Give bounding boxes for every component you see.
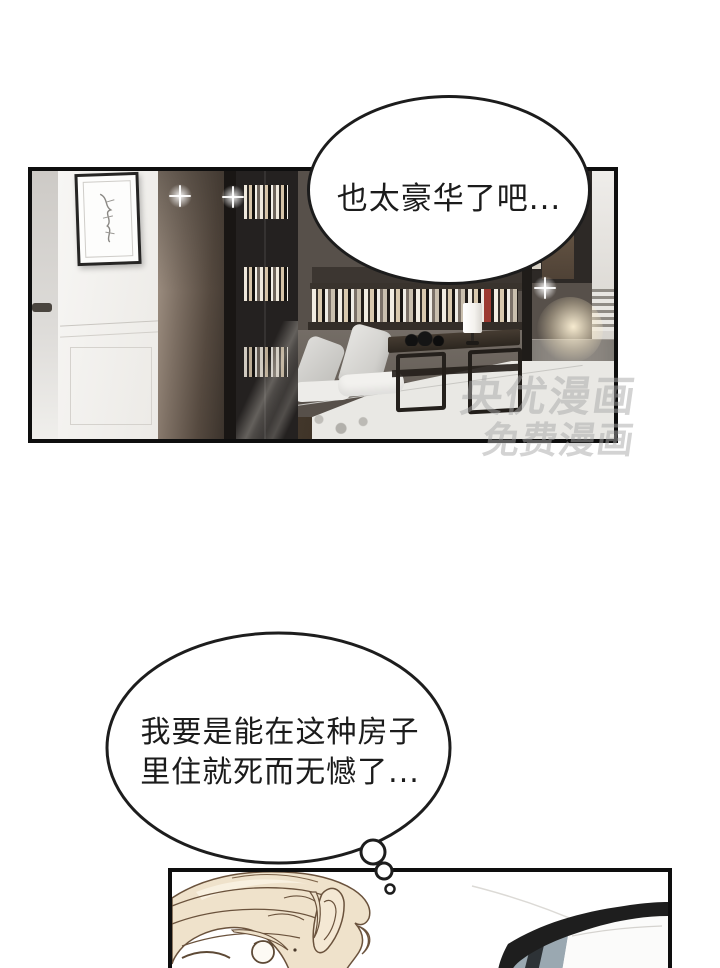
- table-lamp-stem: [471, 333, 474, 341]
- character-eyebrow: [182, 952, 230, 958]
- table-lamp-shade: [463, 303, 482, 333]
- speech-bubble-text: 也太豪华了吧...: [337, 173, 562, 218]
- bookcase-shelf-books: [244, 185, 288, 219]
- thought-line-1: 我要是能在这种房子: [120, 713, 440, 753]
- door-handle: [32, 303, 52, 312]
- door-panel: [70, 347, 152, 425]
- thought-line-2: 里住就死而无憾了...: [120, 753, 440, 793]
- wood-column: [158, 171, 224, 439]
- speech-bubble: 也太豪华了吧...: [307, 95, 591, 285]
- thought-tail-bump: [361, 840, 385, 864]
- table-decor-objects: [404, 328, 446, 346]
- thought-tail-circle-large: [376, 863, 392, 879]
- thought-bubble: 我要是能在这种房子 里住就死而无憾了...: [100, 625, 460, 915]
- framed-picture: [74, 172, 141, 266]
- lamp-glow: [537, 297, 603, 363]
- thought-bubble-text: 我要是能在这种房子 里住就死而无憾了...: [120, 713, 440, 792]
- picture-sketch: [92, 187, 124, 246]
- shadow-gap: [224, 171, 236, 439]
- red-book-spine: [484, 289, 491, 322]
- bookcase-glass-reflection: [236, 321, 298, 439]
- coffee-table-leg-right: [468, 348, 522, 415]
- bookcase-shelf-books: [244, 267, 288, 301]
- comic-page: 央优漫画 免费漫画 也太豪华了吧...: [0, 0, 720, 968]
- character-eye: [252, 941, 274, 963]
- table-lamp-base: [466, 341, 479, 345]
- thought-tail-circle-small: [386, 885, 395, 894]
- coffee-table-leg-left: [396, 352, 446, 413]
- beauty-mark: [293, 948, 296, 951]
